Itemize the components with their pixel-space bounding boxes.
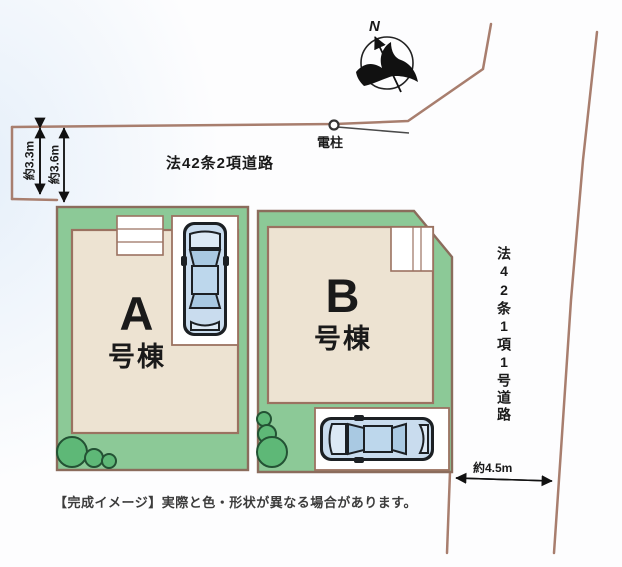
lot-b-suffix: 号棟 [293, 326, 393, 353]
measurement-bottom-right: 約4.5m [473, 459, 512, 476]
right-road-label: 法42条1項1号道路 [494, 246, 514, 416]
lot-a-name: A 号棟 [84, 290, 190, 371]
lot-a-suffix: 号棟 [84, 344, 190, 371]
disclaimer-text: 【完成イメージ】実際と色・形状が異なる場合があります。 [54, 492, 417, 511]
building-a-porch [117, 216, 163, 255]
compass-north-label: N [369, 18, 380, 35]
site-plan-canvas: N 電柱 法42条2項道路 法42条1項1号道路 約3.3m 約3.6m 約4.… [0, 0, 622, 567]
pole-stay-wire [337, 127, 409, 133]
building-b-garage [391, 227, 433, 271]
utility-pole-label: 電柱 [317, 132, 343, 151]
lot-b-name: B 号棟 [293, 272, 393, 353]
measurement-left-outer: 約3.3m [21, 135, 38, 187]
compass-rose-icon [356, 37, 418, 92]
measurement-left-inner: 約3.6m [46, 139, 63, 191]
lot-a-letter: A [84, 290, 190, 337]
lot-b-letter: B [293, 272, 393, 319]
utility-pole-icon [330, 121, 339, 130]
top-road-label: 法42条2項道路 [166, 152, 274, 173]
car-b [320, 415, 434, 463]
